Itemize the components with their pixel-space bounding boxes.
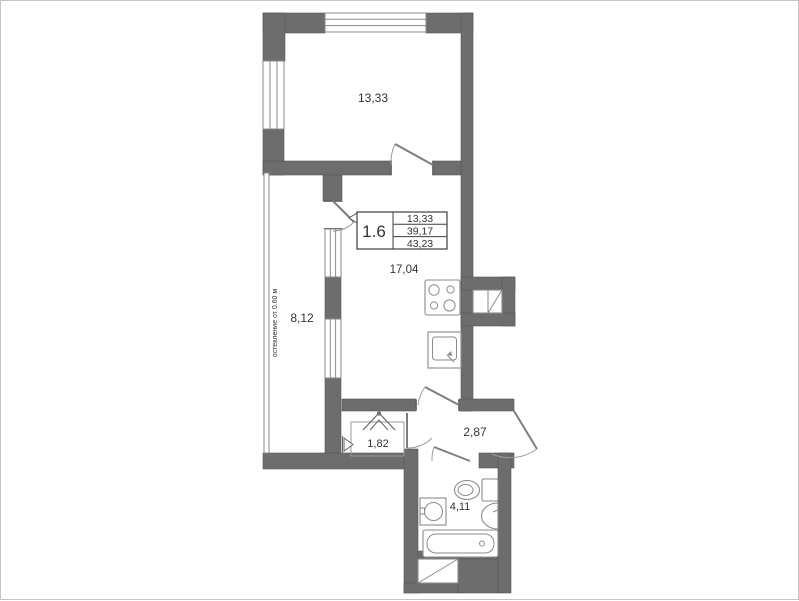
wall bbox=[263, 13, 285, 61]
door-opening bbox=[392, 160, 432, 176]
balcony-glazing bbox=[264, 173, 269, 453]
glazing-annotation: остекление от 0.60 м bbox=[272, 289, 279, 358]
wardrobe-door-arc bbox=[407, 438, 432, 448]
window-left bbox=[263, 61, 284, 129]
door-swing-arc bbox=[418, 387, 425, 405]
door-leaf bbox=[425, 387, 459, 405]
bath-sink-icon bbox=[420, 498, 446, 525]
wall bbox=[263, 161, 391, 175]
room-label-balcony: 8,12 bbox=[290, 311, 314, 325]
wall-step bbox=[323, 175, 342, 201]
stove-icon bbox=[425, 280, 460, 315]
window-top bbox=[325, 13, 426, 32]
hanger-icon bbox=[363, 412, 395, 430]
info-area-1: 13,33 bbox=[407, 213, 433, 225]
info-area-3: 43,23 bbox=[407, 238, 433, 250]
wall-bath-left bbox=[404, 449, 418, 593]
bathroom-door-leaf bbox=[434, 447, 470, 461]
toilet-icon bbox=[455, 479, 499, 501]
wall-partition bbox=[325, 378, 341, 453]
room-label-top: 13,33 bbox=[358, 91, 388, 105]
info-table: 1.6 13,33 39,17 43,23 bbox=[349, 212, 447, 250]
room-label-bathroom: 4,11 bbox=[450, 501, 471, 513]
wall-bottom bbox=[263, 453, 404, 469]
room-label-wardrobe: 1,82 bbox=[367, 438, 388, 450]
bathroom-door-arc bbox=[432, 447, 434, 461]
window-partition-1 bbox=[325, 229, 341, 277]
info-area-2: 39,17 bbox=[407, 226, 433, 238]
room-label-hall: 2,87 bbox=[463, 425, 487, 439]
wall-kitchen-duct-bottom bbox=[461, 313, 515, 326]
floor-plan-drawing: 1.6 13,33 39,17 43,23 13,33 17,04 8,12 1… bbox=[1, 1, 799, 601]
bathroom-fixtures bbox=[420, 479, 498, 557]
wall bbox=[433, 161, 461, 175]
wall-shaft-right bbox=[458, 559, 498, 593]
unit-number: 1.6 bbox=[362, 222, 386, 241]
bathtub-icon bbox=[423, 530, 498, 557]
wall-wardrobe-top bbox=[342, 399, 416, 411]
room-label-living: 17,04 bbox=[390, 264, 419, 276]
wall-hall-top bbox=[459, 399, 514, 411]
floor-plan-canvas: 1.6 13,33 39,17 43,23 13,33 17,04 8,12 1… bbox=[0, 0, 799, 600]
kitchen-sink-icon bbox=[428, 332, 461, 368]
wall-partition bbox=[325, 277, 341, 319]
door-opening bbox=[324, 202, 342, 229]
window-partition-2 bbox=[325, 319, 341, 378]
wall-bath-right bbox=[498, 453, 511, 593]
entrance-door-leaf bbox=[514, 411, 537, 449]
wall-right bbox=[461, 13, 473, 411]
washbasin-icon bbox=[482, 503, 498, 529]
kitchen-fixtures bbox=[425, 280, 461, 368]
wall-shaft-bottom bbox=[404, 583, 458, 593]
